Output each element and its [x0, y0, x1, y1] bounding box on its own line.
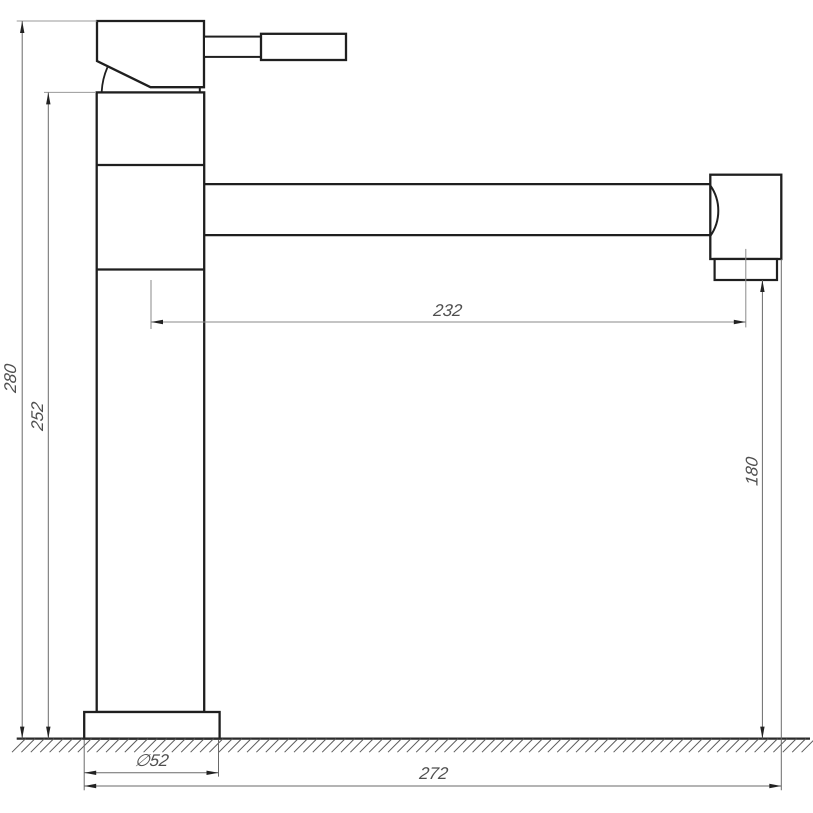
svg-text:180: 180	[743, 455, 762, 487]
svg-text:232: 232	[431, 301, 464, 320]
svg-text:280: 280	[1, 362, 20, 395]
svg-text:∅52: ∅52	[134, 751, 171, 770]
svg-text:252: 252	[28, 400, 47, 433]
svg-text:272: 272	[417, 764, 450, 783]
